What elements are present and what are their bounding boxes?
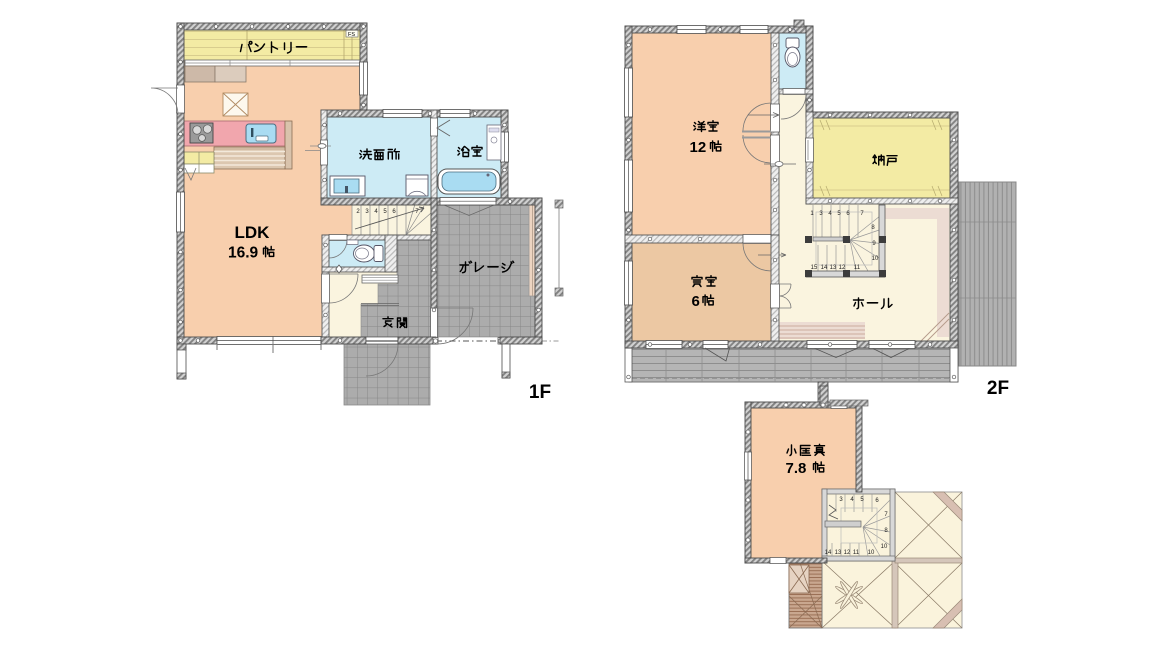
svg-text:10: 10 <box>881 544 888 550</box>
svg-text:11: 11 <box>854 265 861 271</box>
svg-text:1F: 1F <box>529 382 551 403</box>
svg-text:6: 6 <box>692 293 700 310</box>
svg-text:10: 10 <box>868 550 875 556</box>
svg-text:10: 10 <box>872 256 879 262</box>
svg-text:13: 13 <box>835 550 842 556</box>
svg-text:LDK: LDK <box>235 223 271 242</box>
svg-text:7.8: 7.8 <box>786 460 807 477</box>
svg-text:13: 13 <box>830 265 837 271</box>
svg-text:14: 14 <box>821 265 828 271</box>
svg-text:12: 12 <box>839 265 846 271</box>
svg-text:11: 11 <box>853 550 860 556</box>
svg-text:12: 12 <box>690 139 707 156</box>
svg-text:16.9: 16.9 <box>228 245 259 262</box>
svg-text:15: 15 <box>811 265 818 271</box>
svg-text:2F: 2F <box>987 378 1009 399</box>
svg-text:12: 12 <box>844 550 851 556</box>
svg-text:FS: FS <box>348 32 355 38</box>
svg-text:14: 14 <box>825 550 832 556</box>
